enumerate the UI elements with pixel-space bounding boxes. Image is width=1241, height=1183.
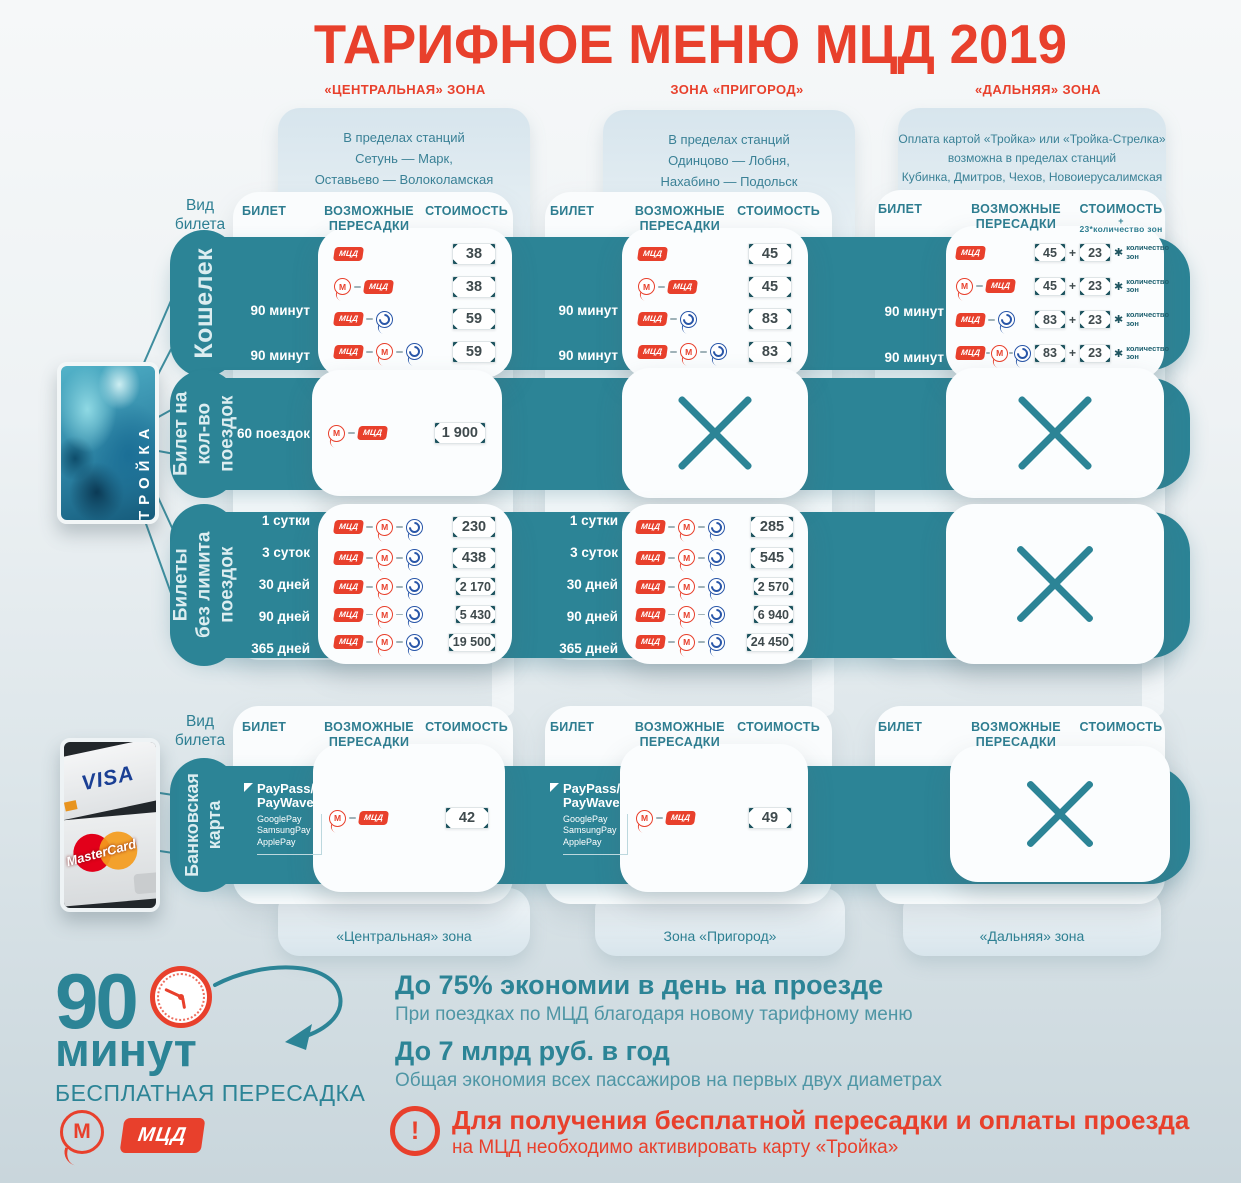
curved-arrow-icon: [0, 0, 1241, 1183]
exclamation-icon: !: [390, 1106, 440, 1156]
infographic-poster: ТАРИФНОЕ МЕНЮ МЦД 2019 «ЦЕНТРАЛЬНАЯ» ЗОН…: [0, 0, 1241, 1183]
